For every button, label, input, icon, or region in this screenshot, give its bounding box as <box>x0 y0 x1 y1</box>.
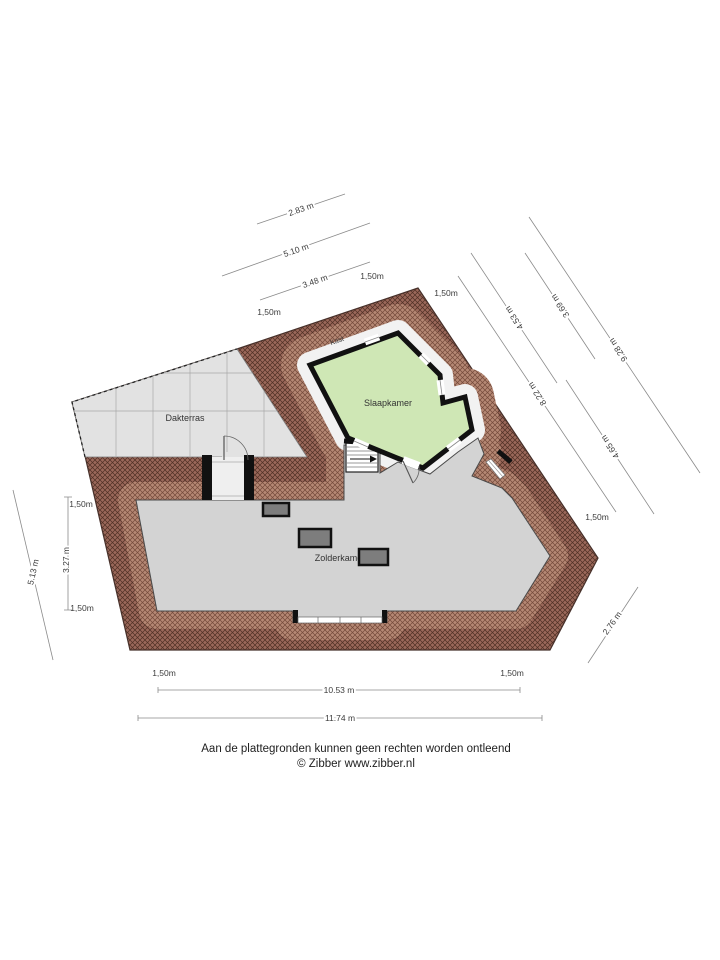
skylight-1 <box>263 503 289 516</box>
dim-label-5-13: 5.13 m <box>25 558 41 586</box>
dim-label-4-65: 4.65 m <box>599 433 622 460</box>
dim-label-150-bottom-right: 1,50m <box>500 668 524 678</box>
footer: Aan de plattegronden kunnen geen rechten… <box>201 743 510 770</box>
dim-label-3-48: 3.48 m <box>301 272 329 290</box>
dim-label-150-bottom-left: 1,50m <box>152 668 176 678</box>
bay-wall-stub-right <box>382 610 387 623</box>
dim-label-11-74: 11.74 m <box>325 713 355 723</box>
dim-label-5-10: 5.10 m <box>282 241 310 259</box>
dim-label-9-28: 9.28 m <box>607 336 630 363</box>
zolderkamer-label: Zolderkamer <box>315 553 366 563</box>
footer-disclaimer: Aan de plattegronden kunnen geen rechten… <box>201 743 510 755</box>
dim-label-3-27: 3.27 m <box>61 547 71 573</box>
skylight-3 <box>359 549 388 565</box>
dim-label-4-53: 4.53 m <box>503 304 526 331</box>
floorplan-canvas: Dakterras Zolderkamer <box>0 0 720 960</box>
dim-label-2-83: 2.83 m <box>287 200 315 218</box>
dim-label-150-right: 1,50m <box>585 512 609 522</box>
dim-label-3-69: 3.69 m <box>549 292 572 319</box>
dim-label-150-left-lower: 1,50m <box>70 603 94 613</box>
bay-wall-stub-left <box>293 610 298 623</box>
slaapkamer-label: Slaapkamer <box>364 398 412 408</box>
dim-label-2-76: 2.76 m <box>600 609 623 636</box>
passage-wall-left <box>202 455 212 500</box>
dim-label-8-22: 8.22 m <box>526 380 549 407</box>
dim-label-150-top-left: 1,50m <box>257 307 281 317</box>
skylight-2 <box>299 529 331 547</box>
footer-copyright: © Zibber www.zibber.nl <box>297 758 415 770</box>
dakterras-label: Dakterras <box>165 413 205 423</box>
passage-floor <box>212 457 244 500</box>
dim-label-150-top-right: 1,50m <box>434 288 458 298</box>
dim-label-10-53: 10.53 m <box>324 685 355 695</box>
floorplan-page: Dakterras Zolderkamer <box>0 0 720 960</box>
passage-wall-right <box>244 455 254 500</box>
dim-label-150-top-mid: 1,50m <box>360 271 384 281</box>
dim-label-150-left-upper: 1,50m <box>69 499 93 509</box>
